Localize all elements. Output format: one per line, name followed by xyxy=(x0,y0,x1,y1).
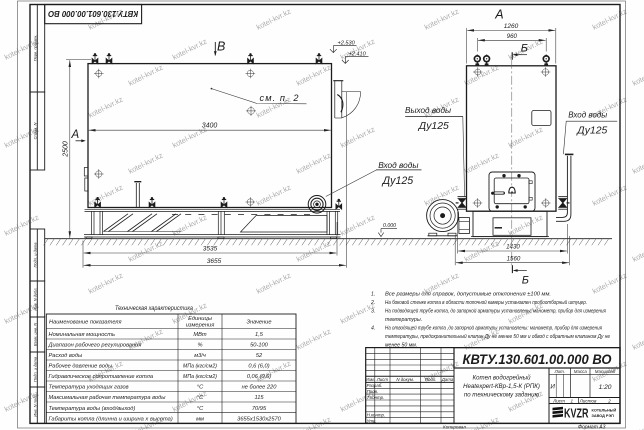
svg-text:температуры.: температуры. xyxy=(385,317,422,323)
svg-text:Пров.: Пров. xyxy=(367,389,379,394)
svg-text:960: 960 xyxy=(507,33,518,40)
svg-text:°С: °С xyxy=(197,395,204,401)
svg-text:Лист: Лист xyxy=(552,398,565,403)
svg-text:А: А xyxy=(71,129,80,141)
svg-text:Изм.: Изм. xyxy=(366,377,375,382)
svg-text:+2.530: +2.530 xyxy=(338,41,356,47)
svg-text:Выход воды: Выход воды xyxy=(405,106,451,115)
svg-text:Утв.: Утв. xyxy=(367,418,377,423)
svg-text:Подп. и дата: Подп. и дата xyxy=(33,356,38,382)
svg-text:°С: °С xyxy=(197,406,204,412)
svg-text:Подп.: Подп. xyxy=(425,377,437,382)
svg-text:3400: 3400 xyxy=(202,123,218,130)
svg-text:1.: 1. xyxy=(371,292,375,298)
svg-text:ЗАВОД РЭП: ЗАВОД РЭП xyxy=(592,414,615,418)
svg-text:Единицы: Единицы xyxy=(188,316,213,322)
svg-text:Лист: Лист xyxy=(376,377,389,382)
svg-text:Дата: Дата xyxy=(441,377,454,382)
svg-text:3535: 3535 xyxy=(203,246,218,253)
svg-text:1: 1 xyxy=(571,398,574,403)
svg-text:Копировал: Копировал xyxy=(443,424,466,429)
svg-text:Диапазон рабочего регулировани: Диапазон рабочего регулирования xyxy=(48,343,142,349)
svg-text:см. п. 2: см. п. 2 xyxy=(260,93,300,103)
svg-text:N докум.: N докум. xyxy=(396,377,414,382)
svg-text:МПа (кгс/см2): МПа (кгс/см2) xyxy=(183,364,217,370)
svg-text:%: % xyxy=(197,343,202,349)
svg-text:На боковой стенке котла в обла: На боковой стенке котла в области топочн… xyxy=(385,299,587,306)
svg-text:4.: 4. xyxy=(371,326,375,332)
svg-text:Габариты котла (длинна и ширин: Габариты котла (длинна и ширина х высота… xyxy=(49,416,173,422)
svg-text:2500: 2500 xyxy=(63,141,70,158)
svg-text:КВТУ.130.601.00.000 ВО: КВТУ.130.601.00.000 ВО xyxy=(48,9,138,19)
svg-text:2: 2 xyxy=(607,398,611,403)
svg-text:KVZR: KVZR xyxy=(564,406,589,421)
svg-text:0.000: 0.000 xyxy=(383,223,396,229)
svg-text:Гидравлическое сопротивление к: Гидравлическое сопротивление котла xyxy=(49,374,154,380)
svg-text:3655х1530х2570: 3655х1530х2570 xyxy=(237,416,281,422)
svg-text:Разраб.: Разраб. xyxy=(367,383,383,388)
svg-text:0,6 (6,0): 0,6 (6,0) xyxy=(248,364,269,370)
svg-text:2.: 2. xyxy=(370,300,375,306)
svg-text:КВТУ.130.601.00.000 ВО: КВТУ.130.601.00.000 ВО xyxy=(463,352,613,367)
svg-text:°С: °С xyxy=(197,385,204,391)
svg-text:МПа (кгс/см2): МПа (кгс/см2) xyxy=(183,374,217,380)
svg-text:Формат А3: Формат А3 xyxy=(578,424,606,430)
svg-text:Ду125: Ду125 xyxy=(418,121,449,132)
svg-text:Значение: Значение xyxy=(247,320,272,326)
svg-text:Техническая характеристика: Техническая характеристика xyxy=(115,305,193,312)
svg-text:3655: 3655 xyxy=(207,258,222,265)
svg-text:Подп. и дата: Подп. и дата xyxy=(33,242,38,268)
svg-text:Т.контр.: Т.контр. xyxy=(367,395,385,400)
svg-text:Б: Б xyxy=(522,275,529,287)
svg-text:1560: 1560 xyxy=(507,255,521,262)
svg-text:70/95: 70/95 xyxy=(252,406,267,412)
svg-text:На подводящей трубе котла, до: На подводящей трубе котла, до запорной а… xyxy=(385,308,606,315)
svg-text:Вход воды: Вход воды xyxy=(568,110,607,119)
svg-text:1,5: 1,5 xyxy=(255,332,264,338)
svg-text:Номинальная мощность: Номинальная мощность xyxy=(49,332,115,338)
svg-text:не более 220: не более 220 xyxy=(242,385,278,391)
svg-text:Максимальная рабочая температу: Максимальная рабочая температура воды xyxy=(49,395,167,401)
svg-text:КОТЕЛЬНЫЙ: КОТЕЛЬНЫЙ xyxy=(592,409,617,413)
svg-text:115: 115 xyxy=(254,395,264,401)
svg-text:Рабочее давление воды: Рабочее давление воды xyxy=(49,364,114,370)
svg-text:3.: 3. xyxy=(371,309,375,315)
svg-text:Н.контр.: Н.контр. xyxy=(367,413,386,418)
svg-text:Вход воды: Вход воды xyxy=(378,160,418,170)
svg-text:Ду125: Ду125 xyxy=(382,175,414,187)
svg-text:Температура уходящих газов: Температура уходящих газов xyxy=(49,385,129,391)
svg-text:Инв. N дубл.: Инв. N дубл. xyxy=(33,287,38,310)
svg-text:52: 52 xyxy=(256,353,263,359)
svg-text:А: А xyxy=(494,7,503,21)
svg-text:Котел водогрейный: Котел водогрейный xyxy=(473,375,532,382)
svg-text:Перв. примен.: Перв. примен. xyxy=(33,35,38,62)
svg-text:+2.410: +2.410 xyxy=(349,52,367,58)
svg-text:температуры, предохранительный: температуры, предохранительный клапан Ду… xyxy=(385,333,610,340)
svg-text:Лит.: Лит. xyxy=(554,369,565,374)
svg-text:Инв. N подл.: Инв. N подл. xyxy=(33,393,38,416)
svg-text:Наименование показателя: Наименование показателя xyxy=(49,320,122,326)
svg-text:по техническому заданию: по техническому заданию xyxy=(464,391,540,398)
svg-text:Масштаб: Масштаб xyxy=(595,369,616,374)
svg-text:0,06 (0,6): 0,06 (0,6) xyxy=(247,374,271,380)
svg-text:Ду125: Ду125 xyxy=(576,126,607,137)
svg-text:мм: мм xyxy=(196,416,204,422)
svg-text:На отводящей трубе котла ,до з: На отводящей трубе котла ,до запорной ар… xyxy=(385,325,602,332)
svg-text:1260: 1260 xyxy=(504,23,519,30)
svg-text:Heatexpert-КВр-1,5-К (РПК): Heatexpert-КВр-1,5-К (РПК) xyxy=(463,383,540,390)
svg-text:Взам. инв. N: Взам. инв. N xyxy=(33,323,38,346)
svg-text:50-100: 50-100 xyxy=(250,343,269,349)
svg-text:МВт: МВт xyxy=(193,332,207,338)
svg-text:Расход воды: Расход воды xyxy=(49,353,83,359)
svg-text:Листов: Листов xyxy=(579,398,597,403)
svg-text:Б: Б xyxy=(521,43,528,55)
svg-text:Температура воды (вход/выход): Температура воды (вход/выход) xyxy=(49,406,136,412)
svg-text:И: И xyxy=(550,383,555,390)
svg-text:1430: 1430 xyxy=(506,244,520,251)
svg-text:измерения: измерения xyxy=(186,322,214,328)
svg-text:1:20: 1:20 xyxy=(599,384,612,391)
svg-text:м3/ч: м3/ч xyxy=(194,353,206,359)
svg-text:Все размеры для справок, допус: Все размеры для справок, допустимые откл… xyxy=(385,292,551,298)
svg-text:Справ. N: Справ. N xyxy=(33,123,38,140)
svg-text:Масса: Масса xyxy=(574,369,588,374)
svg-text:В: В xyxy=(217,40,225,54)
